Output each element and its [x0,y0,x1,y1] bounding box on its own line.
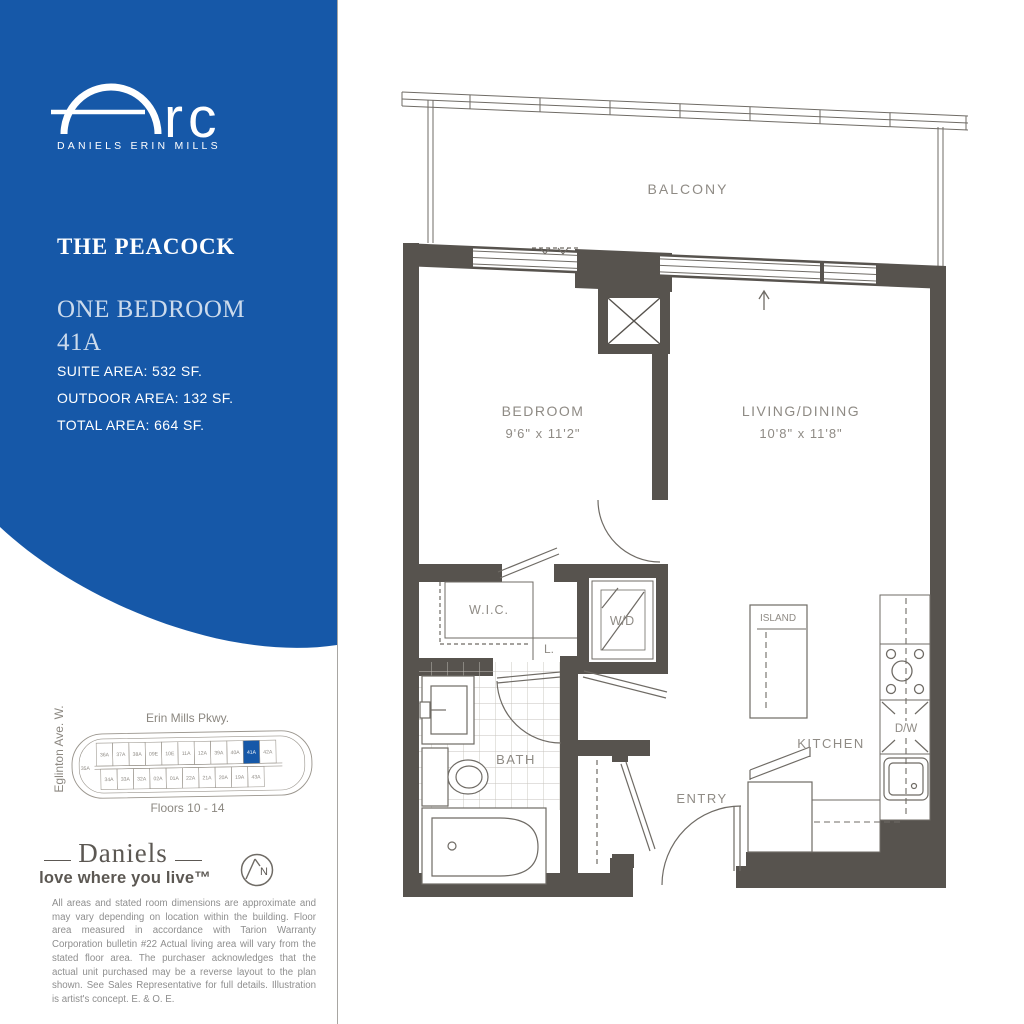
fridge [748,747,812,852]
washer-dryer-closet [583,581,667,698]
entry-label: ENTRY [676,791,727,806]
balcony-access-arrow [759,291,769,310]
bedroom-dims: 9'6" x 11'2" [505,426,580,441]
bedroom-label: BEDROOM [502,403,585,419]
shaft-column [608,298,660,344]
kitchen-label: KITCHEN [797,736,865,751]
balcony-label: BALCONY [648,181,729,197]
floorplan-page: rc DANIELS ERIN MILLS THE PEACOCK ONE BE… [0,0,1024,1024]
wic-label: W.I.C. [469,603,509,617]
dishwasher-label: D/W [895,723,918,735]
closet-slider-leaf [621,762,655,851]
kitchen-counter-lower [812,800,880,852]
floorplan-drawing: BALCONY [0,0,1024,1024]
entry-closet [597,760,655,866]
wd-label: W/D [610,614,634,628]
kitchen-counter-upper [880,595,930,644]
living-dining-dims: 10'8" x 11'8" [759,426,842,441]
bedroom-entry-swing [598,500,660,562]
windows [473,248,876,310]
bedroom-door-leaf [498,548,559,578]
bathtub [422,808,546,884]
entry-door-swing [662,806,741,885]
bathroom [419,662,561,884]
balcony-railing [402,92,968,267]
island-label: ISLAND [760,613,796,624]
linen-label: L. [544,642,554,656]
wd-door-leaf [583,671,667,698]
living-dining-label: LIVING/DINING [742,403,860,419]
bath-vanity-sink [420,676,474,744]
bath-label: BATH [496,752,536,767]
